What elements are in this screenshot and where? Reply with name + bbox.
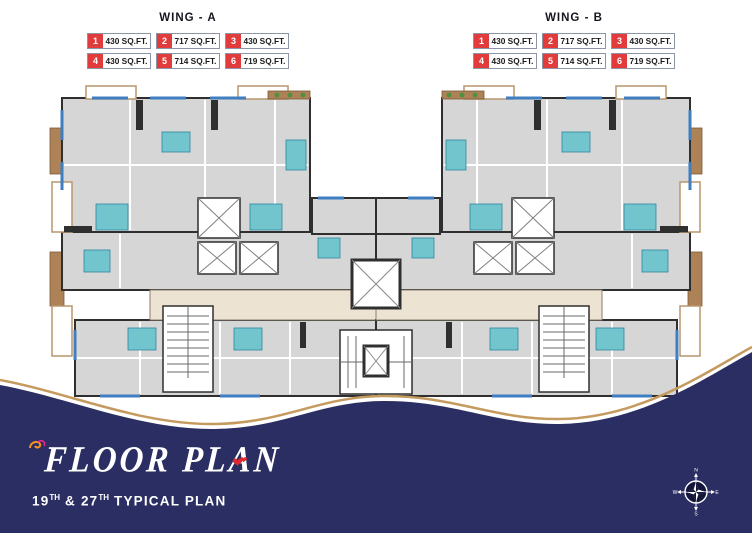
unit-number-badge: 3 bbox=[612, 34, 627, 48]
unit-number-badge: 2 bbox=[157, 34, 172, 48]
compass-east-label: E bbox=[715, 490, 719, 496]
subtitle-sup: TH bbox=[49, 493, 60, 502]
wing-a-legend-row-2: 4 430 SQ.FT. 5 714 SQ.FT. 6 719 SQ.FT. bbox=[83, 53, 293, 69]
legend-unit-5: 5 714 SQ.FT. bbox=[542, 53, 606, 69]
subtitle-part: & 27 bbox=[60, 494, 98, 509]
legend-unit-4: 4 430 SQ.FT. bbox=[473, 53, 537, 69]
legend-unit-6: 6 719 SQ.FT. bbox=[225, 53, 289, 69]
subtitle-sup: TH bbox=[98, 493, 109, 502]
subtitle-part: 19 bbox=[32, 494, 49, 509]
unit-area-label: 719 SQ.FT. bbox=[241, 54, 288, 68]
compass-north-label: N bbox=[694, 468, 698, 474]
compass-south-label: S bbox=[694, 512, 698, 517]
subtitle-part: TYPICAL PLAN bbox=[109, 494, 226, 509]
unit-area-label: 430 SQ.FT. bbox=[103, 34, 150, 48]
unit-area-label: 714 SQ.FT. bbox=[172, 54, 219, 68]
wing-a-legend-row-1: 1 430 SQ.FT. 2 717 SQ.FT. 3 430 SQ.FT. bbox=[83, 33, 293, 49]
wing-a-legend: WING - A 1 430 SQ.FT. 2 717 SQ.FT. 3 430… bbox=[83, 12, 293, 73]
unit-number-badge: 3 bbox=[226, 34, 241, 48]
unit-number-badge: 6 bbox=[226, 54, 241, 68]
compass-icon: N E S W bbox=[672, 468, 720, 516]
unit-number-badge: 5 bbox=[157, 54, 172, 68]
wing-b-legend: WING - B 1 430 SQ.FT. 2 717 SQ.FT. 3 430… bbox=[469, 12, 679, 73]
hearts-icon: ❤❤ bbox=[232, 455, 250, 471]
legend-unit-4: 4 430 SQ.FT. bbox=[87, 53, 151, 69]
unit-number-badge: 1 bbox=[88, 34, 103, 48]
footer-subtitle: 19TH & 27TH TYPICAL PLAN bbox=[32, 493, 226, 509]
unit-number-badge: 4 bbox=[474, 54, 489, 68]
unit-area-label: 714 SQ.FT. bbox=[558, 54, 605, 68]
legend-unit-3: 3 430 SQ.FT. bbox=[225, 33, 289, 49]
wing-b-legend-row-1: 1 430 SQ.FT. 2 717 SQ.FT. 3 430 SQ.FT. bbox=[469, 33, 679, 49]
unit-area-label: 430 SQ.FT. bbox=[103, 54, 150, 68]
unit-area-label: 430 SQ.FT. bbox=[489, 54, 536, 68]
unit-number-badge: 2 bbox=[543, 34, 558, 48]
legend-unit-1: 1 430 SQ.FT. bbox=[473, 33, 537, 49]
unit-area-label: 430 SQ.FT. bbox=[627, 34, 674, 48]
legend-unit-1: 1 430 SQ.FT. bbox=[87, 33, 151, 49]
legend-unit-6: 6 719 SQ.FT. bbox=[611, 53, 675, 69]
wing-b-title: WING - B bbox=[469, 12, 679, 24]
unit-number-badge: 5 bbox=[543, 54, 558, 68]
legend-unit-5: 5 714 SQ.FT. bbox=[156, 53, 220, 69]
legend-unit-2: 2 717 SQ.FT. bbox=[156, 33, 220, 49]
unit-number-badge: 6 bbox=[612, 54, 627, 68]
unit-number-badge: 4 bbox=[88, 54, 103, 68]
compass-west-label: W bbox=[673, 490, 678, 496]
legend-unit-3: 3 430 SQ.FT. bbox=[611, 33, 675, 49]
unit-area-label: 717 SQ.FT. bbox=[172, 34, 219, 48]
unit-area-label: 430 SQ.FT. bbox=[489, 34, 536, 48]
unit-area-label: 717 SQ.FT. bbox=[558, 34, 605, 48]
unit-area-label: 430 SQ.FT. bbox=[241, 34, 288, 48]
legend-unit-2: 2 717 SQ.FT. bbox=[542, 33, 606, 49]
wing-b-legend-row-2: 4 430 SQ.FT. 5 714 SQ.FT. 6 719 SQ.FT. bbox=[469, 53, 679, 69]
floor-plan-page: WING - A 1 430 SQ.FT. 2 717 SQ.FT. 3 430… bbox=[0, 0, 752, 533]
wing-a-title: WING - A bbox=[83, 12, 293, 24]
unit-number-badge: 1 bbox=[474, 34, 489, 48]
unit-area-label: 719 SQ.FT. bbox=[627, 54, 674, 68]
